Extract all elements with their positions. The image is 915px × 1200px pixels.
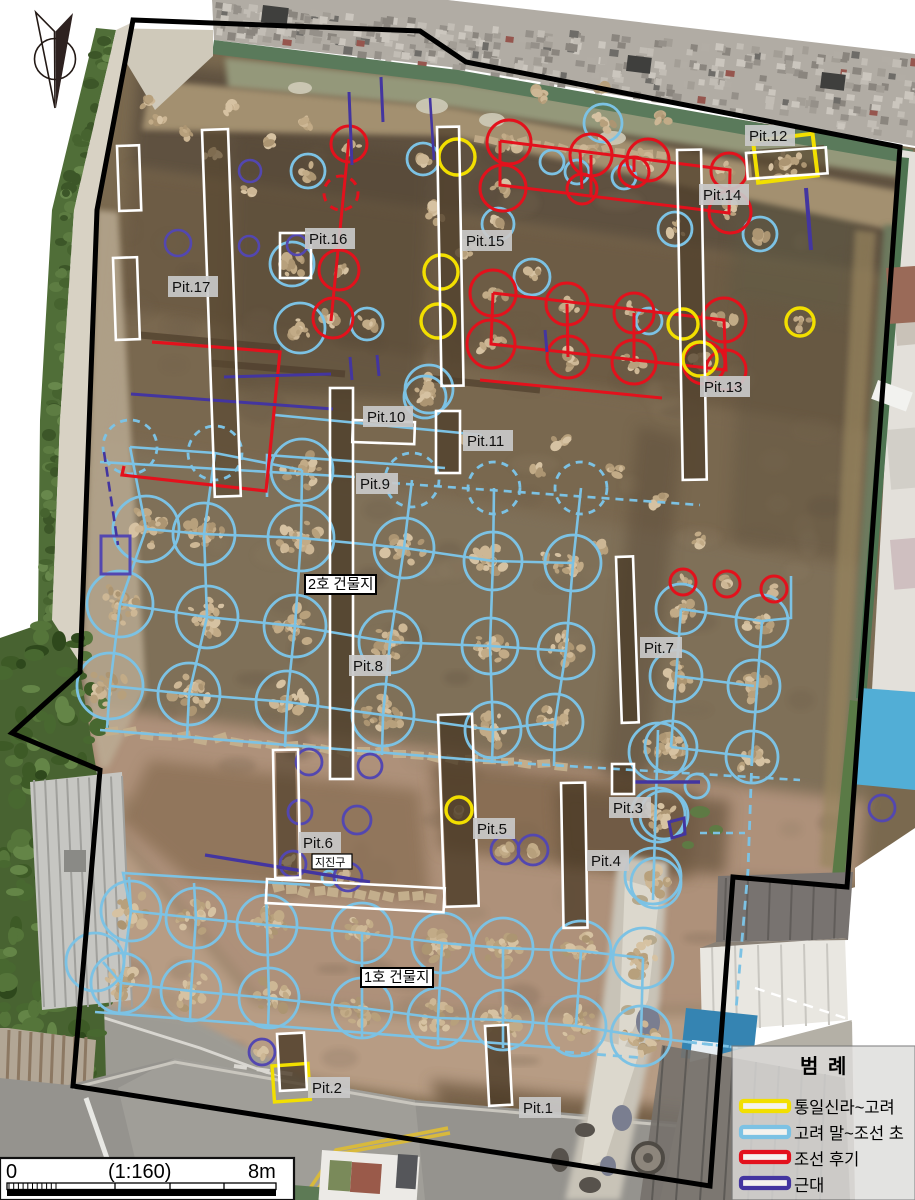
svg-text:8m: 8m bbox=[248, 1161, 276, 1183]
svg-text:Pit.3: Pit.3 bbox=[613, 800, 643, 817]
svg-text:Pit.17: Pit.17 bbox=[172, 279, 210, 296]
svg-text:Pit.4: Pit.4 bbox=[591, 853, 621, 870]
svg-text:근대: 근대 bbox=[794, 1176, 824, 1195]
svg-text:Pit.6: Pit.6 bbox=[303, 835, 333, 852]
svg-text:지진구: 지진구 bbox=[315, 856, 345, 869]
svg-text:Pit.16: Pit.16 bbox=[309, 231, 347, 248]
svg-text:Pit.13: Pit.13 bbox=[704, 379, 742, 396]
svg-text:1호 건물지: 1호 건물지 bbox=[364, 969, 429, 986]
svg-text:고려 말~조선 초: 고려 말~조선 초 bbox=[794, 1124, 904, 1143]
svg-text:Pit.12: Pit.12 bbox=[749, 128, 787, 145]
svg-text:Pit.11: Pit.11 bbox=[467, 433, 504, 450]
svg-text:(1:160): (1:160) bbox=[108, 1161, 171, 1183]
svg-text:Pit.1: Pit.1 bbox=[523, 1100, 553, 1117]
svg-text:Pit.5: Pit.5 bbox=[477, 821, 507, 838]
svg-text:범 례: 범 례 bbox=[800, 1055, 848, 1078]
svg-text:2호 건물지: 2호 건물지 bbox=[308, 576, 373, 593]
svg-text:0: 0 bbox=[6, 1161, 17, 1183]
svg-text:조선 후기: 조선 후기 bbox=[794, 1150, 859, 1169]
svg-text:Pit.2: Pit.2 bbox=[312, 1080, 342, 1097]
svg-text:Pit.9: Pit.9 bbox=[360, 476, 390, 493]
svg-text:Pit.8: Pit.8 bbox=[353, 658, 383, 675]
svg-text:Pit.7: Pit.7 bbox=[644, 640, 674, 657]
svg-text:Pit.10: Pit.10 bbox=[367, 409, 405, 426]
svg-text:Pit.14: Pit.14 bbox=[703, 187, 741, 204]
svg-text:Pit.15: Pit.15 bbox=[466, 233, 504, 250]
svg-text:통일신라~고려: 통일신라~고려 bbox=[794, 1098, 895, 1117]
